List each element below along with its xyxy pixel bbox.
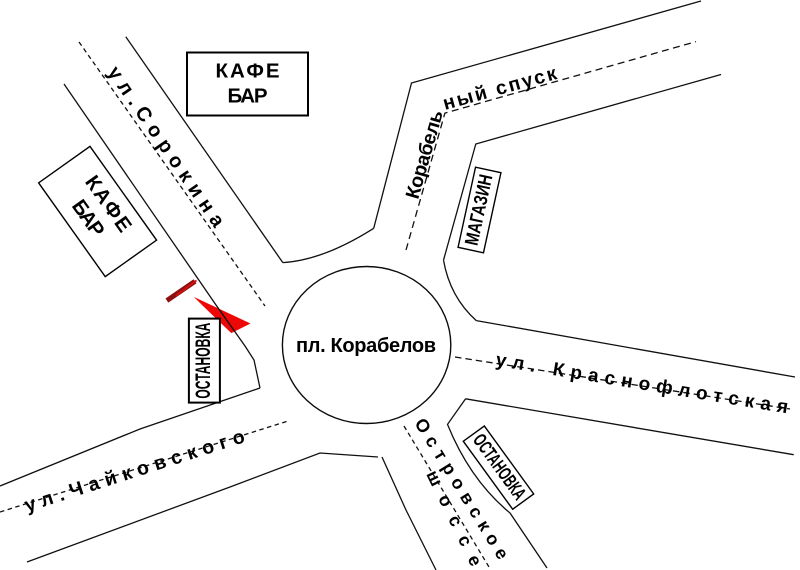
- svg-text:пл. Корабелов: пл. Корабелов: [296, 335, 436, 357]
- svg-text:КАФЕ: КАФЕ: [216, 60, 280, 83]
- svg-text:ОСТАНОВКА: ОСТАНОВКА: [192, 323, 215, 399]
- svg-text:БАР: БАР: [228, 84, 268, 107]
